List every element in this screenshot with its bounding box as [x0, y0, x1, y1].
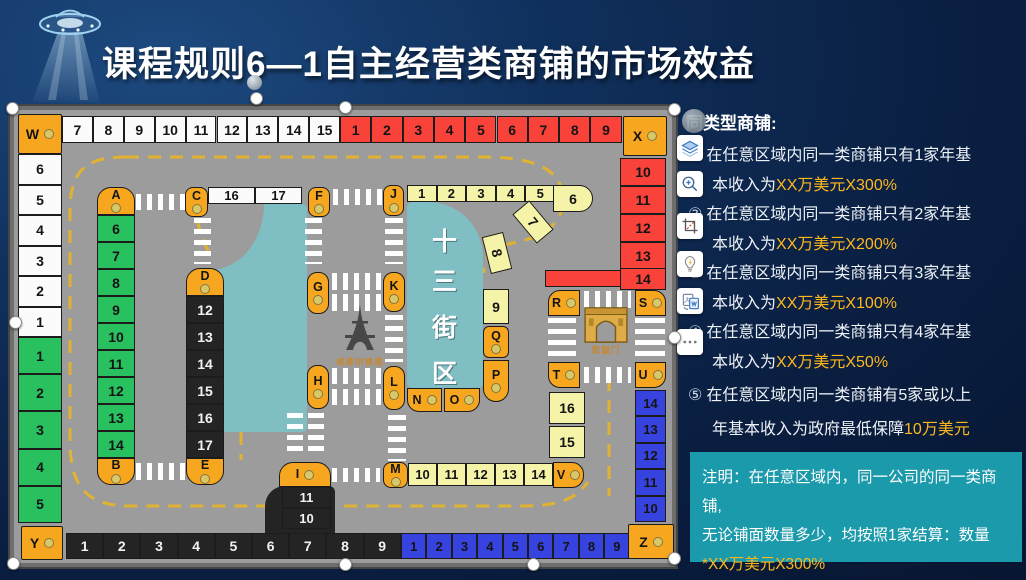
board-cell: 3: [466, 185, 496, 202]
doc-convert-icon[interactable]: [677, 288, 703, 314]
rule-item-text: 本收入为: [712, 236, 776, 253]
corner-letter: W: [26, 127, 39, 141]
rule-item-text: 在任意区域内同一类商铺只有2家年基: [706, 206, 971, 223]
board-cell: 2: [18, 276, 62, 307]
board-cell: 8: [326, 533, 363, 559]
rule-item-line2: 本收入为XX万美元X50%: [712, 348, 888, 372]
cap-dot: [570, 470, 580, 480]
board-cell: 1: [18, 307, 62, 338]
board-cell: 4: [477, 533, 502, 559]
rule-item-line2: 本收入为XX万美元X200%: [712, 230, 897, 254]
rule-item-text: 本收入为: [712, 177, 776, 194]
board-cell: 11: [620, 186, 666, 214]
board-cell: 11: [635, 469, 666, 495]
corner-dot: [653, 537, 663, 547]
board-cell: 17: [186, 431, 224, 458]
more-icon[interactable]: [677, 329, 703, 355]
board-cell: 5: [525, 185, 555, 202]
board-cell: 11: [282, 487, 331, 508]
board-cap-O: O: [444, 388, 480, 412]
cap-letter: F: [315, 190, 323, 203]
district-label-char: 区: [432, 354, 457, 390]
note-highlight: *XX万美元X300%: [702, 550, 1010, 579]
crosswalk: [194, 218, 211, 264]
board-cell: 14: [186, 350, 224, 377]
cap-letter: G: [313, 281, 323, 294]
board-cap-C: C: [185, 187, 208, 217]
selection-handle[interactable]: [339, 101, 352, 114]
board-cell: 11: [186, 116, 217, 143]
crosswalk: [388, 415, 406, 461]
cap-letter: T: [553, 369, 561, 382]
board-cap-M: M: [383, 462, 408, 488]
crosswalk: [584, 367, 631, 383]
rule-item-text: 在任意区域内同一类商铺有5家或以上: [706, 387, 971, 404]
board-cell: 15: [549, 426, 585, 458]
cap-dot: [200, 284, 210, 294]
board-cap-E: E: [186, 458, 224, 485]
cap-letter: R: [552, 297, 561, 310]
cap-dot: [313, 295, 323, 305]
board-corner-X: X: [623, 116, 667, 156]
rule-item-line2: 本收入为XX万美元X300%: [712, 171, 897, 195]
rule-item-highlight: XX万美元X50%: [776, 354, 888, 371]
rule-item-number: ⑤: [688, 387, 702, 404]
board-cell: 14: [278, 116, 309, 143]
board-cell: 6: [18, 154, 62, 185]
selection-handle[interactable]: [7, 557, 20, 570]
district-label-char: 三: [432, 262, 457, 298]
board-cell: 16: [208, 187, 255, 204]
rule-item-highlight: XX万美元X300%: [776, 177, 897, 194]
cap-dot: [313, 389, 323, 399]
cap-dot: [389, 294, 399, 304]
note-box: 注明：在任意区域内，同一公司的同一类商铺, 无论铺面数量多少，均按照1家结算：数…: [690, 452, 1022, 562]
board-cell: 4: [434, 116, 465, 143]
cap-letter: C: [192, 190, 201, 203]
board-cap-S: S: [635, 290, 666, 316]
board-cell: 12: [97, 377, 135, 404]
cap-dot: [491, 383, 501, 393]
board-cell: 3: [403, 116, 434, 143]
board-cell: 8: [579, 533, 604, 559]
rule-item-line2: 本收入为XX万美元X100%: [712, 289, 897, 313]
cap-dot: [491, 344, 501, 354]
layers-icon[interactable]: [677, 135, 703, 161]
cap-letter: H: [313, 375, 322, 388]
board-cap-F: F: [308, 187, 330, 217]
board-cell: 13: [620, 242, 666, 270]
selection-handle[interactable]: [339, 558, 352, 571]
selection-handle[interactable]: [250, 92, 263, 105]
board-cell: 16: [549, 392, 585, 424]
cap-letter: O: [450, 394, 460, 407]
board-cell: 7: [528, 116, 559, 143]
board-cap-L: L: [383, 366, 405, 410]
rotate-handle[interactable]: [247, 75, 262, 90]
board-cell: 4: [178, 533, 215, 559]
cap-dot: [427, 395, 437, 405]
board-cell: 12: [620, 214, 666, 242]
cap-dot: [111, 474, 121, 484]
board-cell: 1: [18, 337, 62, 374]
board-cell: 12: [635, 443, 666, 469]
rule-item-text: 本收入为: [712, 354, 776, 371]
board-cell: 10: [282, 508, 331, 529]
board-cell: 14: [620, 268, 666, 290]
cap-letter: L: [390, 376, 398, 389]
rule-item-text: 在任意区域内同一类商铺只有3家年基: [706, 265, 971, 282]
cap-dot: [389, 390, 399, 400]
board-cell: 13: [97, 404, 135, 431]
rule-item-line1: ②在任意区域内同一类商铺只有2家年基: [688, 200, 971, 224]
crosswalk: [635, 318, 665, 360]
rule-item-line1: ④在任意区域内同一类商铺只有4家年基: [688, 318, 971, 342]
board-cell: 9: [364, 533, 401, 559]
district-label-char: 街: [432, 308, 457, 344]
district-label-char: 十: [432, 222, 457, 258]
ufo-icon: [18, 4, 128, 104]
crosswalk: [385, 218, 403, 264]
landmark-label: 埃菲尔铁塔: [336, 356, 384, 368]
crosswalk: [385, 315, 403, 362]
board-cell: 9: [483, 289, 509, 324]
board-cell: 5: [18, 486, 62, 523]
board-cell: 14: [635, 390, 666, 416]
board-cell: 5: [18, 185, 62, 216]
crop-icon[interactable]: [677, 213, 703, 239]
landmark-label: 凯旋门: [592, 344, 621, 356]
rule-item-line1: ①在任意区域内同一类商铺只有1家年基: [688, 141, 971, 165]
board-cap-V: V: [553, 462, 584, 488]
corner-dot: [44, 538, 54, 548]
crosswalk: [136, 463, 185, 480]
crosswalk: [332, 468, 380, 482]
board-cell: 2: [426, 533, 451, 559]
board-cell: 10: [635, 496, 666, 522]
board-cell: 12: [186, 296, 224, 323]
board-cell: 1: [401, 533, 426, 559]
zoom-in-icon[interactable]: [677, 171, 703, 197]
rule-item-text: 在任意区域内同一类商铺只有1家年基: [706, 147, 971, 164]
board-cell: 5: [215, 533, 252, 559]
board-cell: 7: [289, 533, 326, 559]
cap-dot: [653, 370, 663, 380]
cap-letter: M: [390, 463, 400, 476]
board-cell: 12: [466, 463, 495, 486]
board-cap-Q: Q: [483, 326, 509, 358]
crosswalk: [332, 368, 382, 384]
rule-item-line1: ③在任意区域内同一类商铺只有3家年基: [688, 259, 971, 283]
rule-item-text: 年基本收入为政府最低保障: [712, 421, 904, 438]
cap-letter: N: [412, 394, 421, 407]
board-cell: 2: [103, 533, 140, 559]
rule-item-line1: ⑤在任意区域内同一类商铺有5家或以上: [688, 381, 971, 405]
cap-letter: D: [200, 270, 209, 283]
board-cell: 13: [186, 323, 224, 350]
cap-dot: [111, 203, 121, 213]
board-cell: 10: [155, 116, 186, 143]
cap-letter: V: [557, 469, 565, 482]
page-title: 课程规则6—1自主经营类商铺的市场效益: [102, 36, 755, 87]
board-cell: 15: [186, 377, 224, 404]
crosswalk: [308, 413, 324, 457]
board-cap-I: I: [279, 462, 331, 487]
board-cell: [545, 270, 623, 287]
board-cell: 13: [495, 463, 524, 486]
cap-letter: Q: [491, 330, 501, 343]
board-cell: 10: [408, 463, 437, 486]
board-cell: 15: [309, 116, 340, 143]
slide-page: 课程规则6—1自主经营类商铺的市场效益 十三街区7891011121314151…: [0, 0, 1026, 580]
board-cell: 3: [452, 533, 477, 559]
board-cap-N: N: [407, 388, 442, 412]
board-cell: 10: [620, 158, 666, 186]
rule-item-line2: 年基本收入为政府最低保障10万美元: [712, 415, 970, 439]
board-cell: 6: [252, 533, 289, 559]
board-cap-D: D: [186, 268, 224, 296]
board-cell: 8: [559, 116, 590, 143]
board-cap-U: U: [635, 362, 666, 388]
board-cell: 7: [62, 116, 93, 143]
cap-letter: I: [296, 468, 299, 481]
cap-letter: S: [639, 297, 647, 310]
board-cell: 9: [604, 533, 629, 559]
rule-item-highlight: 10万美元: [904, 421, 970, 438]
rule-item-text: 在任意区域内同一类商铺只有4家年基: [706, 324, 971, 341]
board-cell: 1: [407, 185, 437, 202]
board-cell: 4: [18, 449, 62, 486]
board-cell: 7: [97, 242, 135, 269]
board-corner-W: W: [18, 114, 62, 154]
cap-dot: [200, 474, 210, 484]
board-cell: 6: [97, 215, 135, 242]
rule-item-highlight: XX万美元X100%: [776, 295, 897, 312]
board-cell: 5: [503, 533, 528, 559]
board-cell: 14: [97, 431, 135, 458]
board-cell: 10: [97, 323, 135, 350]
board-corner-Z: Z: [628, 524, 674, 559]
rule-item-highlight: XX万美元X200%: [776, 236, 897, 253]
selection-handle[interactable]: [6, 102, 19, 115]
cap-dot: [565, 370, 575, 380]
board-cap-J: J: [383, 185, 404, 216]
cap-dot: [304, 470, 314, 480]
board-cell: 9: [97, 296, 135, 323]
board-cell: 13: [247, 116, 278, 143]
board-cell: 1: [66, 533, 103, 559]
idea-bulb-icon[interactable]: [677, 251, 703, 277]
board-corner-Y: Y: [21, 526, 63, 560]
board-cell: 6: [553, 185, 593, 212]
board-cell: 12: [217, 116, 248, 143]
board-cell: 11: [437, 463, 466, 486]
cap-dot: [464, 395, 474, 405]
corner-letter: X: [633, 129, 642, 143]
crosswalk: [548, 318, 576, 360]
collapse-circle-icon[interactable]: [682, 109, 706, 133]
board-cap-A: A: [97, 187, 135, 215]
board-cell: 6: [497, 116, 528, 143]
board-cell: 7: [553, 533, 578, 559]
board-cell: 9: [124, 116, 155, 143]
cap-letter: E: [201, 459, 209, 472]
board-cell: 17: [255, 187, 302, 204]
rule-item-text: 本收入为: [712, 295, 776, 312]
selection-handle[interactable]: [668, 103, 681, 116]
cap-dot: [314, 204, 324, 214]
board-cell: 3: [140, 533, 177, 559]
cap-dot: [391, 477, 401, 487]
crosswalk: [305, 218, 322, 264]
board-cell: 5: [465, 116, 496, 143]
board-cell: 2: [371, 116, 402, 143]
corner-dot: [647, 131, 657, 141]
cap-letter: B: [111, 459, 120, 472]
board-cell: 8: [97, 269, 135, 296]
board-cell: 6: [528, 533, 553, 559]
board-cell: 11: [97, 350, 135, 377]
landmark-eiffel-tower: 埃菲尔铁塔: [334, 302, 386, 370]
crosswalk: [332, 389, 382, 405]
crosswalk: [332, 273, 382, 290]
cap-dot: [652, 298, 662, 308]
selection-handle[interactable]: [527, 558, 540, 571]
board-cell: 2: [18, 374, 62, 411]
corner-dot: [44, 129, 54, 139]
board-cell: 16: [186, 404, 224, 431]
cap-letter: K: [389, 280, 398, 293]
board-cell: 1: [340, 116, 371, 143]
crosswalk: [136, 194, 185, 210]
corner-letter: Y: [30, 536, 39, 550]
board-cell: 3: [18, 411, 62, 448]
cap-letter: P: [492, 369, 500, 382]
corner-letter: Z: [639, 535, 648, 549]
board-cell: 8: [93, 116, 124, 143]
cap-letter: U: [638, 369, 647, 382]
board-image[interactable]: 十三街区789101112131415123456789654321123451…: [14, 110, 672, 563]
board-cap-B: B: [97, 458, 135, 485]
board-cell: 14: [524, 463, 553, 486]
board-cell: 3: [18, 246, 62, 277]
board-cell: 4: [18, 215, 62, 246]
board-cap-K: K: [383, 272, 405, 312]
board-cell: 2: [437, 185, 467, 202]
board-cap-H: H: [307, 365, 329, 409]
cap-dot: [192, 204, 202, 214]
board-cell: 13: [635, 416, 666, 442]
board-cap-T: T: [548, 362, 580, 388]
crosswalk: [333, 189, 385, 205]
note-line: 无论铺面数量多少，均按照1家结算：数量: [702, 521, 1010, 550]
selection-handle[interactable]: [9, 316, 22, 329]
cap-dot: [389, 203, 399, 213]
selection-handle[interactable]: [668, 331, 681, 344]
board-cell: 4: [496, 185, 526, 202]
crosswalk: [287, 413, 303, 457]
cap-letter: A: [111, 189, 120, 202]
board-cap-R: R: [548, 290, 580, 316]
selection-handle[interactable]: [668, 552, 681, 565]
board-cell: 9: [590, 116, 621, 143]
board-cap-G: G: [307, 272, 329, 314]
board-cap-P: P: [483, 360, 509, 402]
cap-dot: [566, 298, 576, 308]
cap-letter: J: [390, 188, 397, 201]
note-line: 注明：在任意区域内，同一公司的同一类商铺,: [702, 463, 1010, 521]
landmark-arc-de-triomphe: 凯旋门: [580, 306, 632, 356]
